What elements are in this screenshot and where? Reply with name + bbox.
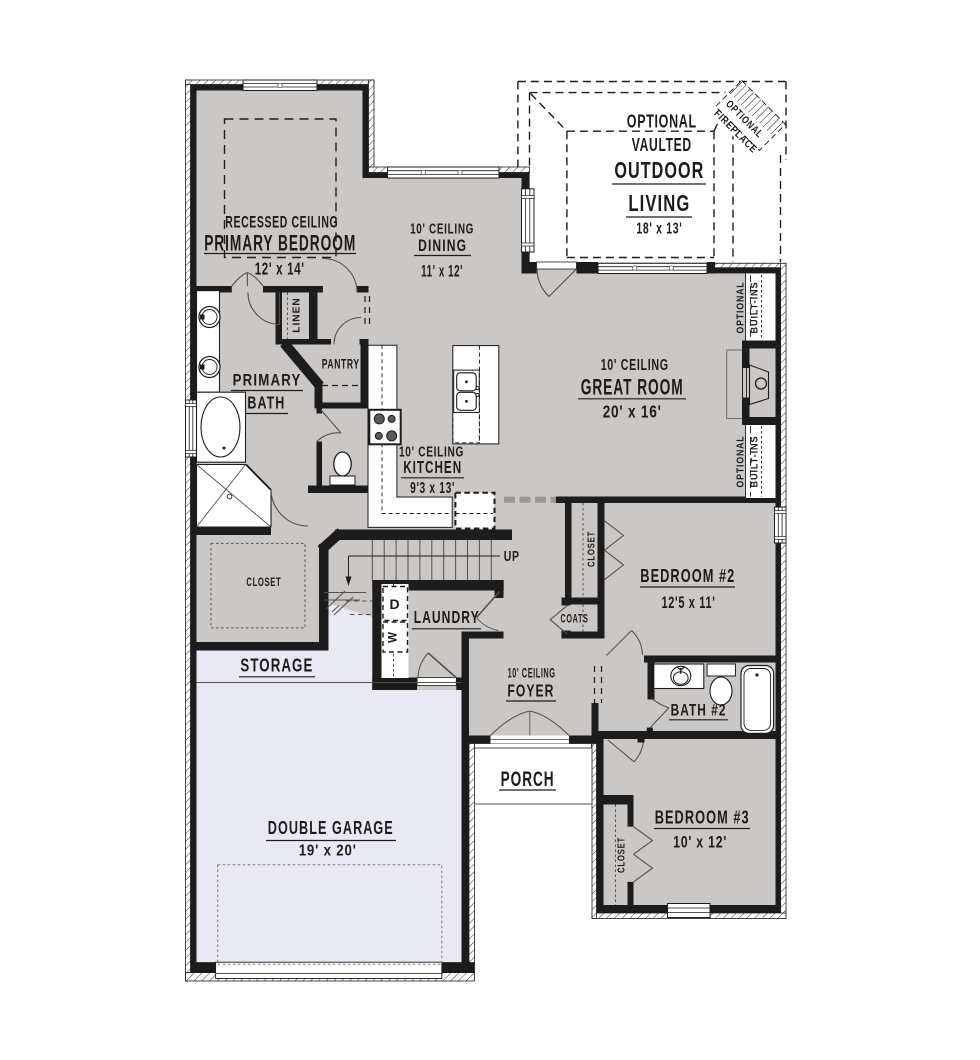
svg-text:UP: UP [504, 548, 520, 565]
svg-text:OPTIONAL: OPTIONAL [736, 282, 747, 334]
svg-text:BUILT-INS: BUILT-INS [750, 282, 761, 334]
svg-text:BEDROOM #3: BEDROOM #3 [655, 807, 750, 828]
svg-text:PRIMARY: PRIMARY [233, 372, 302, 390]
svg-text:GREAT ROOM: GREAT ROOM [581, 375, 684, 400]
svg-text:11' x 12': 11' x 12' [421, 263, 463, 281]
svg-text:COATS: COATS [561, 614, 589, 626]
svg-text:OPTIONAL: OPTIONAL [627, 112, 697, 132]
svg-text:LIVING: LIVING [628, 190, 690, 216]
svg-text:OPTIONAL: OPTIONAL [736, 436, 747, 488]
svg-text:DOUBLE GARAGE: DOUBLE GARAGE [268, 818, 394, 838]
svg-text:LINEN: LINEN [291, 297, 303, 333]
svg-text:CLOSET: CLOSET [616, 837, 628, 873]
svg-text:BATH: BATH [247, 393, 285, 413]
svg-text:W: W [388, 631, 400, 643]
svg-text:18' x 13': 18' x 13' [636, 221, 682, 238]
svg-text:9'3 x 13': 9'3 x 13' [410, 480, 455, 497]
svg-text:PRIMARY BEDROOM: PRIMARY BEDROOM [204, 231, 356, 256]
svg-text:LAUNDRY: LAUNDRY [414, 607, 480, 627]
svg-text:BUILT-INS: BUILT-INS [750, 436, 761, 488]
svg-text:12'5 x 11': 12'5 x 11' [662, 594, 716, 612]
svg-text:10' x 12': 10' x 12' [673, 834, 727, 852]
svg-text:PORCH: PORCH [501, 768, 555, 791]
svg-text:VAULTED: VAULTED [632, 135, 692, 155]
svg-text:CLOSET: CLOSET [246, 575, 281, 589]
svg-text:OUTDOOR: OUTDOOR [614, 157, 704, 183]
svg-text:BEDROOM #2: BEDROOM #2 [640, 565, 735, 586]
svg-text:RECESSED CEILING: RECESSED CEILING [225, 213, 338, 232]
svg-text:10' CEILING: 10' CEILING [410, 222, 474, 238]
svg-text:12' x 14': 12' x 14' [255, 259, 305, 279]
svg-text:STORAGE: STORAGE [240, 655, 313, 676]
svg-text:FOYER: FOYER [507, 681, 554, 701]
svg-text:19' x 20': 19' x 20' [299, 843, 357, 860]
svg-text:DINING: DINING [418, 237, 467, 255]
svg-text:10' CEILING: 10' CEILING [601, 357, 669, 374]
svg-text:KITCHEN: KITCHEN [403, 457, 462, 477]
svg-text:BATH #2: BATH #2 [671, 701, 727, 720]
svg-text:PANTRY: PANTRY [322, 356, 360, 372]
svg-text:D: D [389, 596, 400, 612]
svg-text:20' x 16': 20' x 16' [603, 402, 662, 422]
svg-text:10' CEILING: 10' CEILING [508, 666, 556, 681]
svg-text:CLOSET: CLOSET [586, 531, 598, 567]
